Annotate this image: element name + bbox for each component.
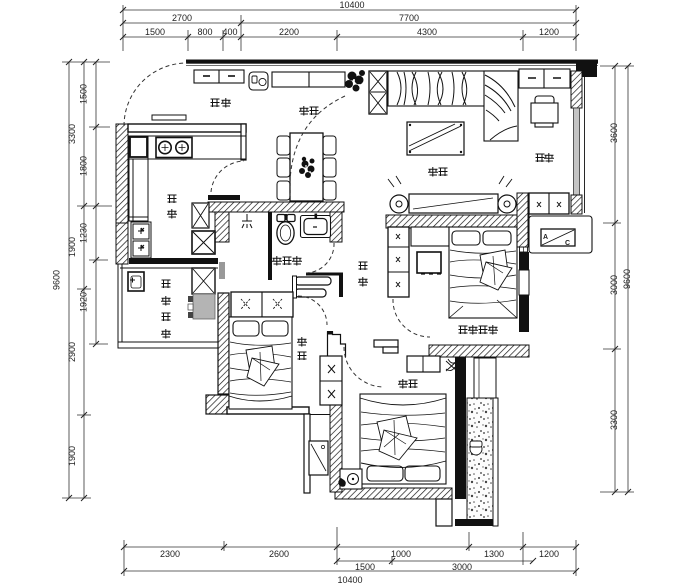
svg-text:1900: 1900	[67, 237, 77, 257]
svg-text:7700: 7700	[399, 13, 419, 23]
svg-text:10400: 10400	[339, 0, 364, 10]
svg-text:1200: 1200	[539, 549, 559, 559]
svg-text:3000: 3000	[452, 562, 472, 572]
svg-text:3000: 3000	[609, 275, 619, 295]
svg-text:10400: 10400	[337, 575, 362, 585]
svg-text:1300: 1300	[484, 549, 504, 559]
svg-text:1500: 1500	[79, 84, 89, 104]
svg-text:3600: 3600	[609, 123, 619, 143]
svg-text:3300: 3300	[609, 410, 619, 430]
svg-text:1500: 1500	[145, 27, 165, 37]
svg-text:C: C	[565, 240, 570, 247]
svg-text:1920: 1920	[79, 292, 89, 312]
svg-text:1500: 1500	[355, 562, 375, 572]
svg-text:800: 800	[197, 27, 212, 37]
svg-text:1200: 1200	[539, 27, 559, 37]
svg-text:1900: 1900	[67, 446, 77, 466]
svg-text:9600: 9600	[622, 269, 632, 289]
svg-text:2600: 2600	[269, 549, 289, 559]
svg-text:A: A	[543, 234, 548, 241]
svg-text:1230: 1230	[79, 223, 89, 243]
svg-text:1800: 1800	[79, 156, 89, 176]
svg-text:4300: 4300	[417, 27, 437, 37]
svg-text:1000: 1000	[391, 549, 411, 559]
svg-text:2900: 2900	[67, 342, 77, 362]
svg-text:2200: 2200	[279, 27, 299, 37]
svg-text:9600: 9600	[52, 270, 62, 290]
svg-text:2700: 2700	[172, 13, 192, 23]
svg-text:3300: 3300	[67, 124, 77, 144]
svg-text:2300: 2300	[160, 549, 180, 559]
